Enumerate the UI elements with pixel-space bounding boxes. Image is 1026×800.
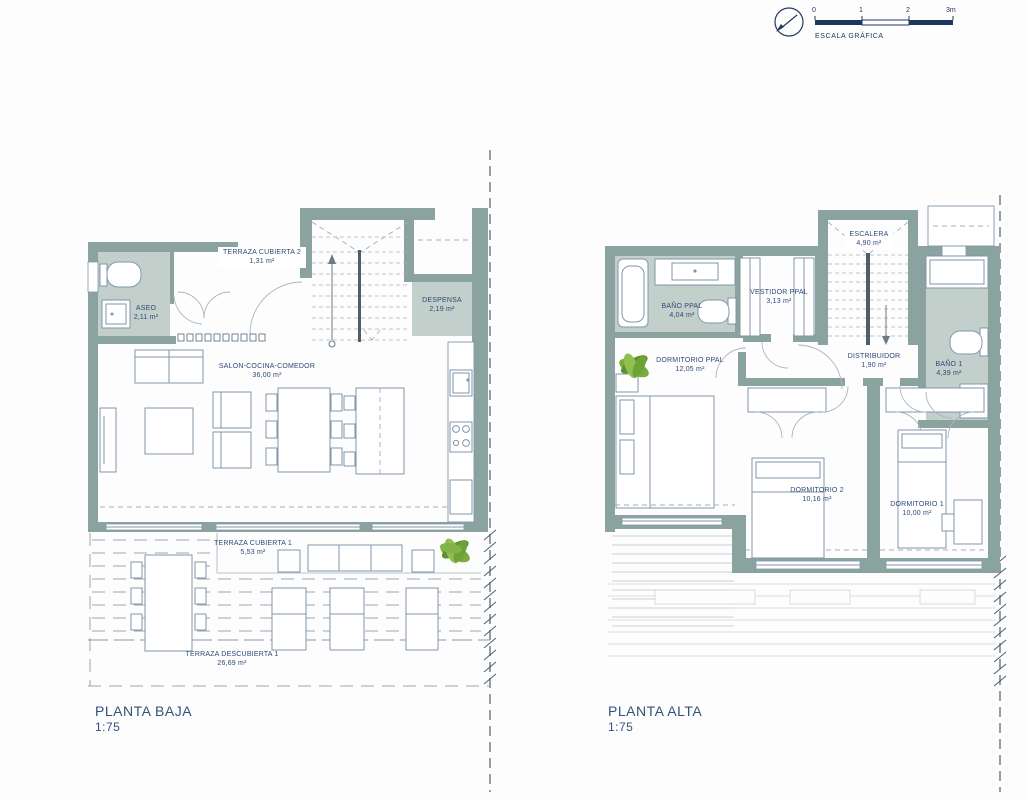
toilet (950, 328, 988, 356)
room-label-aseo: ASEO 2,11 m² (134, 304, 159, 323)
room-label-terraza-descubierta-1: TERRAZA DESCUBIERTA 1 26,69 m² (185, 650, 278, 669)
tv-unit (100, 408, 116, 472)
single-bed (898, 430, 946, 548)
room-label-escalera: ESCALERA 4,90 m² (845, 229, 894, 250)
closet (748, 388, 826, 438)
scale-tick-3: 3m (946, 7, 956, 14)
kitchen-island (344, 388, 404, 474)
outdoor-dining-table (131, 555, 206, 651)
planta-baja-drawing (88, 208, 490, 686)
room-label-bano-ppal: BAÑO PPAL 4,04 m² (662, 302, 703, 321)
washbasin (102, 300, 130, 328)
armchairs (213, 392, 251, 468)
room-label-distribuidor: DISTRIBUIDOR 1,90 m² (848, 352, 901, 371)
room-label-dormitorio-2: DORMITORIO 2 10,16 m² (790, 486, 844, 505)
room-label-dormitorio-1: DORMITORIO 1 10,00 m² (890, 500, 944, 519)
planta-alta-drawing (605, 206, 1000, 656)
single-bed (752, 458, 824, 558)
toilet (100, 262, 141, 287)
room-label-terraza-cubierta-2: TERRAZA CUBIERTA 2 1,31 m² (218, 247, 306, 268)
staircase (312, 222, 408, 347)
toilet (698, 298, 736, 324)
planta-alta-title: PLANTA ALTA 1:75 (608, 702, 702, 736)
room-label-vestidor-ppal: VESTIDOR PPAL 3,13 m² (750, 288, 808, 307)
bathtub (618, 259, 648, 327)
kitchen-counter (448, 342, 474, 522)
vanity-sink (655, 259, 735, 285)
planta-baja-title: PLANTA BAJA 1:75 (95, 702, 192, 736)
room-label-bano-1: BAÑO 1 4,39 m² (936, 360, 963, 379)
desk (942, 500, 982, 544)
sun-loungers (272, 588, 438, 650)
scale-caption: ESCALA GRÁFICA (815, 33, 884, 40)
sofa (135, 350, 203, 383)
room-label-salon: SALON-COCINA-COMEDOR 36,00 m² (219, 362, 315, 381)
dining-table (266, 388, 342, 472)
scale-tick-1: 1 (859, 7, 863, 14)
coffee-table (145, 408, 193, 454)
scale-bar (815, 16, 953, 25)
room-label-terraza-cubierta-1: TERRAZA CUBIERTA 1 5,53 m² (214, 539, 292, 558)
double-bed (616, 374, 714, 508)
north-arrow-icon (775, 8, 803, 36)
shower (926, 256, 988, 288)
scale-tick-0: 0 (812, 7, 816, 14)
room-label-dormitorio-ppal: DORMITORIO PPAL 12,05 m² (656, 356, 724, 375)
scale-tick-2: 2 (906, 7, 910, 14)
radiator (178, 334, 265, 341)
floor-plan-sheet: TERRAZA CUBIERTA 2 1,31 m² ASEO 2,11 m² … (0, 0, 1026, 800)
plan-linework (0, 0, 1026, 800)
room-label-despensa: DESPENSA 2,19 m² (422, 296, 462, 315)
